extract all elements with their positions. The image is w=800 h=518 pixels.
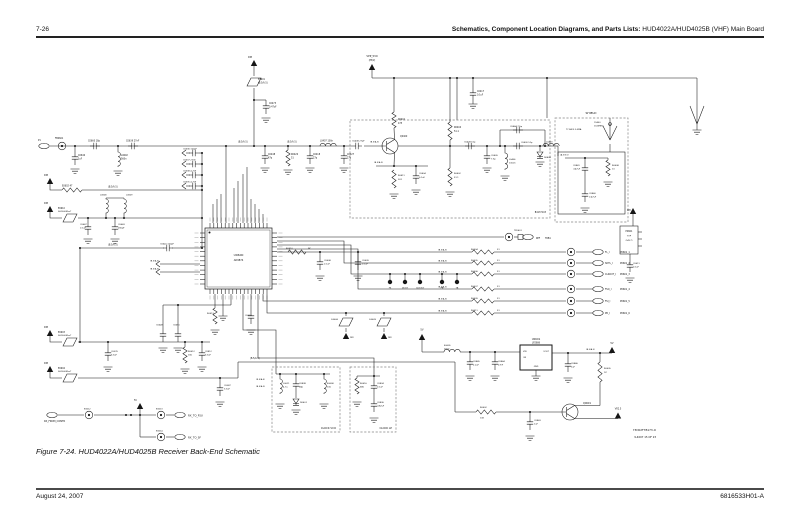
- component-label: TRB1: [545, 237, 551, 240]
- junction-dot: [539, 145, 541, 147]
- connector-pin: [593, 310, 603, 315]
- component-label: 51.1: [454, 177, 459, 179]
- transistor: [382, 140, 395, 153]
- component-box: [518, 235, 523, 240]
- component-label: 0.47uF: [589, 197, 597, 199]
- component-label: (P3/2): [369, 59, 376, 62]
- ground-symbol: [604, 182, 613, 186]
- test-point: [388, 280, 392, 284]
- inductor: [124, 198, 126, 214]
- junction-dot: [279, 373, 281, 375]
- component-label: (B.5/A.5): [108, 244, 118, 247]
- offpage-arrow-icon: [182, 172, 186, 178]
- component-label: L0611: [283, 383, 290, 385]
- connector-pin: [593, 249, 603, 254]
- ground-symbol: [174, 348, 183, 352]
- component-label: 0.1uF: [324, 264, 331, 266]
- junction-dot: [219, 377, 221, 379]
- diode: [293, 399, 299, 405]
- junction-dot: [472, 77, 474, 79]
- inductor: [320, 143, 336, 146]
- component-label: C0608: [324, 260, 331, 262]
- resistor: [448, 122, 452, 140]
- component-label: SHIELD: [586, 111, 598, 115]
- component-label: VIN: [523, 351, 527, 353]
- component-label: Q0400: [400, 135, 408, 138]
- component-label: TP0601: [514, 230, 522, 232]
- component-label: 73D02F7B173-O: [633, 428, 657, 432]
- component-label: DM: [350, 337, 354, 339]
- component-label: 680: [360, 387, 365, 389]
- antenna-icon: [690, 104, 704, 124]
- component-label: P0601_6: [620, 312, 630, 315]
- connector-pin: [593, 260, 603, 265]
- component-label: L0406: [509, 159, 516, 161]
- component-label: C0426: [491, 155, 498, 157]
- resistor: [183, 347, 187, 363]
- component-label: 0.1uF: [419, 177, 426, 179]
- ground-symbol: [564, 378, 573, 382]
- junction-dot: [74, 145, 76, 147]
- component-label: L0407 100n: [320, 140, 334, 143]
- emi-filter: [377, 318, 391, 326]
- component-label: (B.5/A.5): [287, 141, 297, 144]
- component-label: REF: [536, 237, 541, 240]
- component-label: C0609: [362, 260, 369, 262]
- component-label: 7.5p: [491, 159, 496, 161]
- component-label: E0610: [58, 207, 66, 210]
- ground-symbol: [390, 194, 399, 198]
- junction-dot: [201, 341, 203, 343]
- component-label: .047uF: [573, 169, 581, 171]
- resistor: [355, 378, 359, 394]
- shield-box: [350, 120, 550, 218]
- junction-dot: [319, 251, 321, 253]
- junction-dot: [504, 145, 506, 147]
- capacitor: [163, 245, 173, 251]
- power-flag: [137, 403, 143, 409]
- component-label: E0612: [84, 409, 91, 411]
- component-label: 10: [612, 169, 615, 171]
- component-label: C0812: [205, 351, 212, 353]
- component-label: C0841: [573, 165, 580, 167]
- component-label: L0403: [546, 142, 553, 144]
- component-label: VOUT: [543, 351, 549, 353]
- component-label: P0601_3: [620, 273, 630, 276]
- ground-symbol: [216, 402, 225, 406]
- connector-pin: [593, 286, 603, 291]
- component-label: C0838: [299, 383, 306, 385]
- component-label: 0.1uF: [377, 387, 384, 389]
- schematic-canvas: R060451(B.5/A.5)FL_IP0601_1R060551(B.5/A…: [38, 54, 704, 441]
- power-flag: [630, 208, 636, 214]
- ground-symbol: [320, 404, 329, 408]
- component-label: 51: [497, 271, 500, 273]
- junction-dot: [201, 163, 203, 165]
- component-label: E0602 47: [62, 185, 73, 188]
- emi-filter: [63, 338, 77, 346]
- component-label: DM: [248, 56, 252, 59]
- component-label: RX_TO_FSU: [188, 414, 203, 418]
- component-label: DM: [44, 202, 48, 205]
- capacitor: [189, 183, 199, 189]
- resistor: [392, 170, 396, 188]
- schematic-figure: R060451(B.5/A.5)FL_IP0601_1R060551(B.5/A…: [0, 0, 800, 518]
- component-label: 51: [497, 298, 500, 300]
- test-point: [403, 280, 407, 284]
- component-label: R0607: [471, 286, 478, 288]
- power-flag: [381, 333, 387, 339]
- power-flag: [609, 347, 615, 353]
- component-label: C0649: [156, 325, 163, 327]
- connector-pin: [523, 234, 533, 239]
- junction-dot: [201, 247, 203, 249]
- component-label: R0616: [360, 383, 367, 385]
- power-flag: [419, 334, 425, 340]
- component-label: 560n: [121, 158, 127, 161]
- component-label: C0430 51p: [521, 142, 533, 144]
- component-label: E0608: [327, 383, 334, 385]
- ground-symbol: [491, 376, 500, 380]
- component-label: 27p: [347, 157, 352, 160]
- ground-symbol: [247, 330, 256, 334]
- component-label: AD9874: [234, 259, 244, 262]
- component-label: (B.5/A.5): [150, 268, 159, 271]
- wire: [50, 184, 62, 190]
- junction-dot: [393, 77, 395, 79]
- component-label: E0603: [58, 331, 66, 334]
- test-point: [440, 280, 444, 284]
- component-label: 51.1: [454, 130, 459, 133]
- component-label: 1uF: [534, 424, 539, 426]
- component-label: FSI_I: [605, 300, 611, 303]
- component-label: 5V: [610, 342, 614, 345]
- capacitor: [527, 416, 533, 430]
- junction-dot: [253, 99, 255, 101]
- component-label: E0609: [369, 319, 376, 321]
- component-label: (B.5/A.5): [108, 186, 118, 189]
- ground-symbol: [370, 418, 379, 422]
- offpage-arrow-icon: [182, 150, 186, 156]
- junction-dot: [105, 217, 107, 219]
- component-label: Q0601: [583, 402, 591, 405]
- component-label: DM: [44, 362, 48, 365]
- wire: [394, 153, 395, 167]
- component-label: CLOCK VCO: [321, 426, 336, 430]
- component-label: P0601_4: [620, 288, 630, 291]
- component-label: 68p: [299, 387, 304, 389]
- component-label: E0613: [156, 409, 163, 411]
- component-label: C0650: [245, 315, 252, 317]
- junction-dot: [201, 152, 203, 154]
- component-label: 100: [327, 387, 332, 389]
- resistor: [62, 188, 82, 192]
- component-label: RX_TO_SF: [188, 436, 201, 440]
- junction-dot: [177, 304, 179, 306]
- component-label: P0601_5: [620, 300, 630, 303]
- ground-symbol: [581, 208, 590, 212]
- component-label: E0606: [331, 319, 338, 321]
- ground-symbol: [626, 278, 635, 282]
- component-label: (B.5/A.5): [374, 161, 383, 164]
- component-label: 4.7u: [283, 387, 288, 389]
- component-label: C0637 27nF: [183, 160, 196, 162]
- ground-symbol: [104, 367, 113, 371]
- component-label: C0647: [80, 224, 87, 226]
- component-label: P0601: [626, 230, 633, 233]
- component-label: SDTL_I: [605, 262, 613, 265]
- shield-box: [555, 118, 628, 222]
- component-label: ON: [523, 357, 527, 359]
- ground-symbol: [466, 376, 475, 380]
- capacitor: [189, 161, 199, 167]
- component-label: D0400: [544, 157, 552, 159]
- emi-filter: [63, 214, 77, 222]
- component-label: (A.5/5.5): [560, 154, 569, 157]
- component-label: C0444 7.5p: [510, 126, 523, 128]
- component-label: C0641 100pF: [160, 244, 175, 246]
- resistor: [598, 362, 602, 382]
- component-label: R0611: [471, 310, 478, 312]
- component-label: C0635 4.7nF: [183, 182, 197, 184]
- power-flag: [369, 64, 375, 70]
- component-label: Y0400: [594, 122, 601, 124]
- component-label: C0428 51p: [464, 142, 476, 144]
- component-label: 10K: [480, 418, 485, 420]
- junction-dot: [79, 247, 81, 249]
- junction-dot: [295, 373, 297, 375]
- figure-caption: Figure 7-24. HUD4022A/HUD4025B Receiver …: [36, 447, 260, 456]
- component-label: 51: [291, 157, 294, 160]
- component-label: 2.2uF: [473, 365, 480, 367]
- component-label: (B.5/A.5): [238, 141, 248, 144]
- component-label: 3.3uF: [205, 355, 212, 357]
- junction-dot: [584, 157, 586, 159]
- ground-symbol: [353, 402, 362, 406]
- junction-dot: [404, 273, 406, 275]
- component-label: P0601_2: [620, 262, 630, 265]
- connector-pin: [39, 143, 49, 148]
- ground-symbol: [219, 316, 228, 320]
- component-label: R0613: [207, 313, 214, 315]
- ferrite-bead: [160, 414, 162, 416]
- component-label: E0614: [156, 431, 163, 433]
- junction-dot: [287, 145, 289, 147]
- component-label: U0600: [234, 253, 244, 257]
- ground-symbol: [84, 239, 93, 243]
- component-label: B4137103: [535, 211, 547, 214]
- ferrite-bead: [570, 288, 572, 290]
- emi-filter: [339, 318, 353, 326]
- component-label: U0601: [532, 337, 541, 341]
- capacitor: [467, 356, 473, 370]
- junction-dot: [323, 373, 325, 375]
- connector-pin: [593, 298, 603, 303]
- junction-dot: [415, 165, 417, 167]
- component-label: 0.1uF: [362, 264, 369, 266]
- component-label: DM: [388, 337, 392, 339]
- component-label: R0605: [471, 260, 478, 262]
- component-label: 51: [497, 260, 500, 262]
- ferrite-bead: [570, 300, 572, 302]
- component-box: [558, 152, 625, 214]
- ground-symbol: [536, 162, 545, 166]
- shield-box: [272, 367, 340, 432]
- component-label: 16.8MHZ: [594, 126, 604, 128]
- component-label: C0636 100pF: [183, 149, 198, 151]
- component-label: E0605: [444, 345, 451, 347]
- component-label: (B.5/A.5): [438, 310, 447, 313]
- component-label: 160: [188, 355, 193, 357]
- ferrite-bead: [88, 414, 90, 416]
- component-label: (5/B.7): [626, 240, 633, 242]
- capacitor: [175, 328, 181, 342]
- component-label: C0845: [473, 361, 480, 363]
- junction-dot: [264, 145, 266, 147]
- resistor: [288, 250, 306, 254]
- power-flag: [47, 206, 53, 212]
- junction-dot: [456, 273, 458, 275]
- component-label: R0605: [604, 368, 611, 370]
- component-label: (B.5/A.5): [438, 249, 447, 252]
- component-label: R0404: [454, 126, 462, 129]
- ground-symbol: [276, 404, 285, 408]
- component-label: 5V: [134, 399, 137, 402]
- wire: [394, 128, 395, 140]
- component-label: C0836: [377, 402, 384, 404]
- component-label: R0602: [480, 407, 487, 409]
- ground-symbol: [412, 190, 421, 194]
- component-label: 9-4007 15 OF 23: [634, 435, 656, 439]
- component-label: (B.5/A.5): [370, 141, 379, 144]
- ferrite-bead: [61, 145, 63, 147]
- component-label: C0843: [534, 420, 541, 422]
- component-label: 0.1uF: [80, 228, 87, 230]
- component-label: R0610: [286, 248, 293, 250]
- emi-filter: [63, 374, 77, 382]
- junction-dot: [107, 341, 109, 343]
- component-label: 301: [398, 179, 403, 181]
- capacitor: [217, 382, 223, 396]
- component-label: C0638 4.7nF: [183, 171, 197, 173]
- component-label: FB0601: [55, 137, 64, 140]
- component-label: C0643: [118, 224, 125, 226]
- component-label: 27nF: [498, 365, 504, 367]
- inductor: [324, 378, 326, 394]
- component-label: 51: [497, 249, 500, 251]
- ferrite-bead: [160, 436, 162, 438]
- ferrite-bead: [570, 251, 572, 253]
- footer-doc-number: 6816533H01-A: [720, 493, 764, 500]
- capacitor: [293, 378, 299, 392]
- connector-pin: [175, 434, 185, 439]
- test-point: [418, 280, 422, 284]
- component-label: SH1000MxxT: [58, 335, 72, 337]
- ground-symbol: [284, 170, 293, 174]
- junction-dot: [123, 217, 125, 219]
- component-label: (B.5/A.5): [258, 82, 268, 85]
- footer-rule: [36, 488, 764, 490]
- component-label: C0611: [633, 263, 640, 265]
- component-label: DOUT: [402, 288, 409, 290]
- junction-dot: [499, 145, 501, 147]
- resistor: [448, 168, 452, 186]
- component-label: (B.5/A.5): [256, 385, 265, 388]
- inductor: [505, 152, 508, 170]
- capacitor: [470, 88, 476, 100]
- ground-symbol: [71, 169, 80, 173]
- ground-symbol: [159, 348, 168, 352]
- junction-dot: [201, 189, 203, 191]
- capacitor: [565, 358, 571, 372]
- wire: [258, 294, 374, 376]
- ic-pin1-dot: [209, 232, 211, 234]
- component-label: L0609: [126, 195, 133, 197]
- component-label: (B.5/A.5): [150, 260, 159, 263]
- component-label: 51: [497, 286, 500, 288]
- ground-symbol: [340, 168, 349, 172]
- component-label: C0834: [377, 383, 384, 385]
- component-label: C0840: [589, 193, 596, 195]
- component-label: 1K: [604, 372, 607, 374]
- ground-symbol: [261, 168, 270, 172]
- ferrite-bead: [508, 236, 510, 238]
- ground-symbol: [262, 118, 271, 122]
- junction-dot: [345, 312, 347, 314]
- capacitor: [582, 188, 588, 202]
- component-label: C0844: [498, 361, 505, 363]
- junction-dot: [546, 77, 548, 79]
- ground-symbol: [532, 376, 541, 380]
- component-label: DM: [627, 209, 631, 212]
- ground-symbol: [292, 410, 301, 414]
- component-label: C0639 27nF: [126, 140, 140, 143]
- component-label: R0411: [398, 175, 405, 177]
- component-label: DM: [44, 174, 48, 177]
- ferrite-bead: [570, 273, 572, 275]
- junction-dot: [419, 273, 421, 275]
- component-label: 1uF: [78, 158, 83, 161]
- ground-symbol: [501, 176, 510, 180]
- component-label: PD_I: [605, 312, 610, 315]
- power-flag: [47, 330, 53, 336]
- component-label: CLOCK LP: [379, 426, 392, 430]
- junction-dot: [114, 217, 116, 219]
- component-label: C0404: [419, 173, 426, 175]
- component-label: R0609: [471, 298, 478, 300]
- junction-dot: [449, 77, 451, 79]
- component-label: R0606: [471, 271, 478, 273]
- footer-date: August 24, 2007: [36, 493, 83, 500]
- capacitor: [492, 356, 498, 370]
- component-label: 51: [497, 310, 500, 312]
- ground-symbol: [114, 171, 123, 175]
- component-label: SH1000MxxT: [58, 371, 72, 373]
- ground-symbol: [198, 367, 207, 371]
- component-label: 260pF: [118, 228, 125, 230]
- component-label: P1: [38, 139, 41, 142]
- component-label: DM: [44, 326, 48, 329]
- capacitor: [189, 172, 199, 178]
- diode: [537, 152, 543, 158]
- resistor: [606, 160, 610, 176]
- capacitor: [484, 150, 490, 164]
- component-label: C0846: [571, 363, 578, 365]
- component-label: (B.5/A.5): [438, 271, 447, 274]
- offpage-arrow-icon: [182, 161, 186, 167]
- connector-pin: [47, 412, 57, 417]
- offpage-arrow-icon: [182, 183, 186, 189]
